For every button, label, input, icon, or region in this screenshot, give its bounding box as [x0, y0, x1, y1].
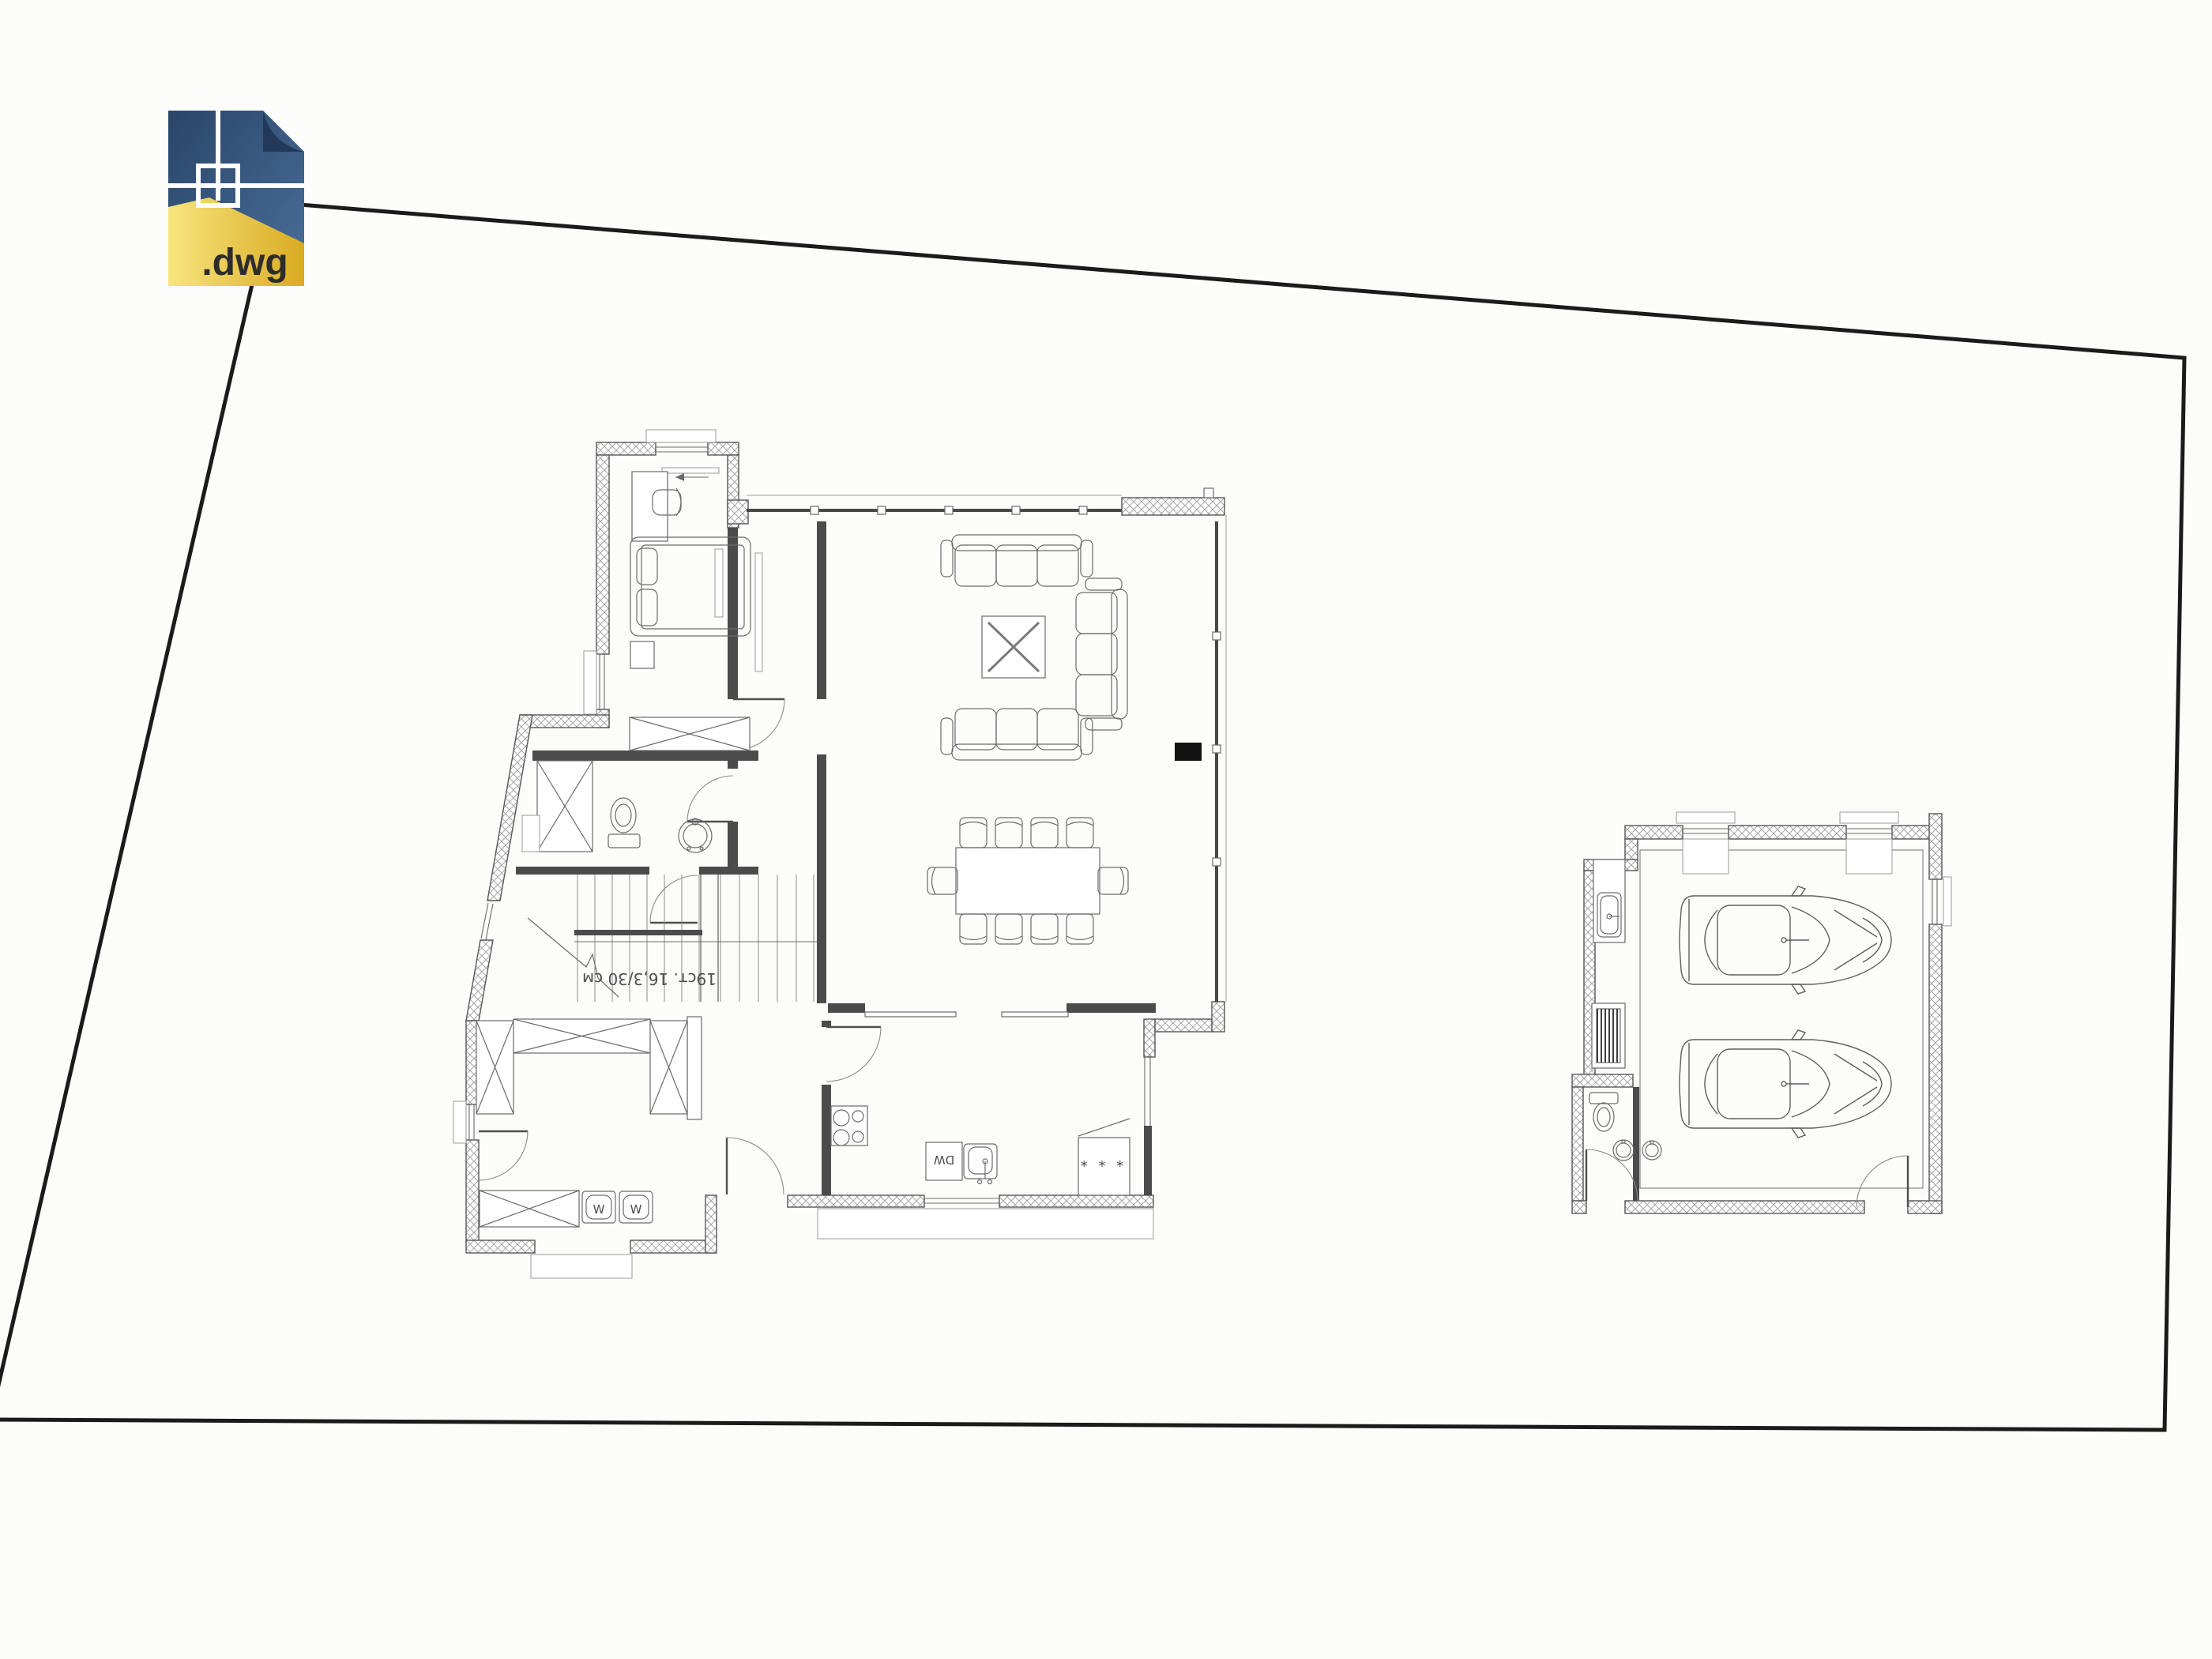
svg-text:DW: DW [934, 1153, 955, 1167]
svg-text:W: W [630, 1202, 642, 1217]
boiler [1592, 1003, 1625, 1068]
svg-text:W: W [593, 1202, 605, 1217]
dwg-file-icon[interactable]: .dwg [168, 111, 304, 286]
file-extension-label: .dwg [201, 242, 288, 284]
svg-text:* * *: * * * [1081, 1158, 1127, 1175]
dwg-preview-canvas: 19ст. 16,3/30 см [0, 0, 2212, 1659]
shelf [522, 815, 540, 852]
coffee-table [982, 616, 1045, 678]
wardrobe [650, 1021, 687, 1114]
wardrobe [476, 1021, 513, 1114]
dishwasher: DW [926, 1142, 962, 1180]
terrace-step [818, 1209, 1153, 1239]
stairs-annotation: 19ст. 16,3/30 см [582, 969, 717, 988]
washing-machine: W [619, 1191, 653, 1223]
bedroom-closet [630, 717, 750, 750]
sliding-door-panel [865, 1012, 956, 1017]
desk [632, 472, 668, 541]
fireplace [1175, 743, 1202, 761]
dining-table [956, 848, 1100, 914]
radiator [755, 553, 762, 671]
garage-sink-counter [1593, 860, 1625, 942]
nightstand [630, 641, 654, 668]
kitchen-sink [964, 1144, 997, 1184]
entrance-porch-step [531, 1255, 632, 1278]
sliding-door-panel [1002, 1012, 1068, 1017]
washing-machine: W [582, 1191, 615, 1223]
cooktop [831, 1106, 867, 1145]
radiator [715, 549, 723, 617]
floor-plan-drawing: 19ст. 16,3/30 см [0, 0, 2212, 1659]
laundry-counter [480, 1191, 579, 1227]
shower [537, 761, 592, 852]
stair-railing [574, 930, 702, 935]
wardrobe [513, 1019, 650, 1053]
page-background [0, 0, 2212, 1659]
